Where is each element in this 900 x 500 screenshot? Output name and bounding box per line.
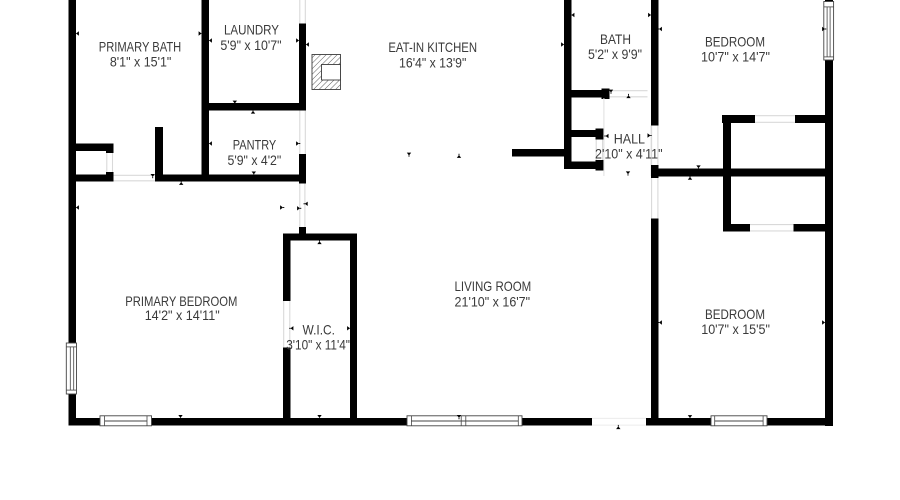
- svg-text:5'2" x 9'9": 5'2" x 9'9": [588, 47, 642, 62]
- svg-text:PRIMARY BEDROOM: PRIMARY BEDROOM: [125, 294, 237, 309]
- svg-text:EAT-IN KITCHEN: EAT-IN KITCHEN: [388, 40, 477, 55]
- svg-text:16'4" x 13'9": 16'4" x 13'9": [399, 55, 466, 70]
- svg-text:10'7" x 15'5": 10'7" x 15'5": [701, 322, 770, 337]
- svg-text:5'9" x 10'7": 5'9" x 10'7": [220, 38, 281, 53]
- svg-text:BEDROOM: BEDROOM: [705, 34, 765, 49]
- svg-text:PANTRY: PANTRY: [233, 138, 277, 153]
- svg-text:2'10" x 4'11": 2'10" x 4'11": [595, 146, 663, 161]
- svg-text:BEDROOM: BEDROOM: [705, 307, 765, 322]
- svg-text:3'10" x 11'4": 3'10" x 11'4": [286, 338, 350, 353]
- svg-text:BATH: BATH: [600, 32, 631, 47]
- svg-text:21'10" x 16'7": 21'10" x 16'7": [455, 295, 531, 310]
- svg-text:LIVING ROOM: LIVING ROOM: [455, 279, 532, 294]
- svg-text:W.I.C.: W.I.C.: [303, 322, 336, 337]
- svg-text:PRIMARY BATH: PRIMARY BATH: [99, 39, 182, 54]
- svg-text:10'7" x 14'7": 10'7" x 14'7": [701, 49, 770, 64]
- svg-text:5'9" x 4'2": 5'9" x 4'2": [228, 153, 282, 168]
- svg-text:HALL: HALL: [614, 132, 646, 147]
- svg-text:LAUNDRY: LAUNDRY: [224, 23, 279, 38]
- svg-text:8'1" x 15'1": 8'1" x 15'1": [110, 54, 172, 69]
- svg-text:14'2" x 14'11": 14'2" x 14'11": [145, 308, 220, 323]
